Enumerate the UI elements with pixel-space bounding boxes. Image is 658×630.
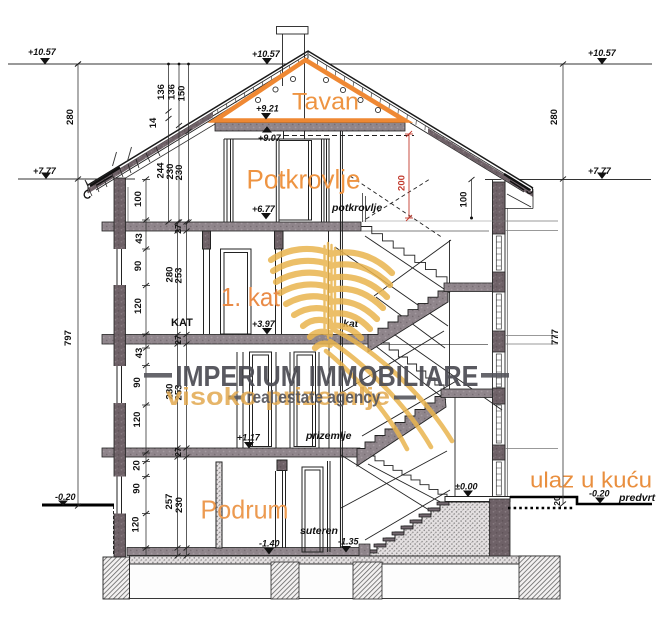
svg-text:136: 136: [156, 84, 167, 100]
svg-text:+6.77: +6.77: [252, 204, 276, 214]
svg-text:potkrovlje: potkrovlje: [331, 202, 382, 214]
svg-text:+10.57: +10.57: [28, 47, 57, 57]
svg-text:90: 90: [133, 261, 144, 272]
svg-text:230: 230: [174, 497, 185, 513]
svg-text:-1.35: -1.35: [338, 537, 360, 547]
svg-text:-1.40: -1.40: [259, 539, 280, 549]
svg-text:100: 100: [133, 191, 144, 207]
svg-text:Podrum: Podrum: [201, 495, 289, 525]
svg-text:90: 90: [132, 377, 143, 388]
svg-text:suteren: suteren: [300, 525, 338, 537]
svg-text:43: 43: [134, 233, 145, 244]
svg-text:27: 27: [173, 447, 183, 457]
svg-text:+9.21: +9.21: [256, 104, 279, 114]
svg-text:predvrt: predvrt: [618, 492, 656, 504]
svg-text:150: 150: [177, 86, 188, 102]
svg-text:280: 280: [549, 109, 560, 125]
svg-text:253: 253: [174, 268, 185, 284]
svg-text:100: 100: [459, 192, 470, 208]
svg-text:+3.97: +3.97: [252, 319, 276, 329]
svg-text:120: 120: [132, 412, 143, 428]
svg-text:KAT: KAT: [171, 317, 193, 329]
svg-text:+10.57: +10.57: [252, 49, 281, 59]
svg-text:27: 27: [173, 224, 183, 234]
svg-text:+10.57: +10.57: [588, 48, 617, 58]
svg-text:14: 14: [148, 117, 159, 128]
svg-text:real estate agency: real estate agency: [247, 387, 381, 407]
svg-text:777: 777: [550, 329, 561, 345]
svg-text:120: 120: [133, 298, 144, 314]
svg-text:120: 120: [131, 517, 142, 533]
svg-text:230: 230: [174, 165, 185, 181]
svg-text:1. kat: 1. kat: [221, 282, 281, 312]
svg-text:Tavan: Tavan: [292, 89, 359, 116]
svg-text:280: 280: [65, 109, 76, 125]
svg-text:20: 20: [552, 496, 562, 506]
svg-text:Potkrovlje: Potkrovlje: [247, 165, 361, 195]
svg-text:90: 90: [132, 483, 143, 494]
svg-text:+1.17: +1.17: [237, 433, 261, 443]
svg-text:200: 200: [397, 175, 408, 191]
svg-text:+9.07: +9.07: [258, 133, 282, 143]
svg-text:ulaz u kuću: ulaz u kuću: [530, 468, 652, 493]
svg-text:20: 20: [132, 460, 143, 471]
svg-text:prizemlje: prizemlje: [305, 430, 352, 442]
svg-text:±0.00: ±0.00: [455, 482, 477, 492]
svg-text:27: 27: [173, 335, 183, 345]
svg-text:797: 797: [63, 330, 74, 346]
svg-text:43: 43: [134, 348, 145, 359]
